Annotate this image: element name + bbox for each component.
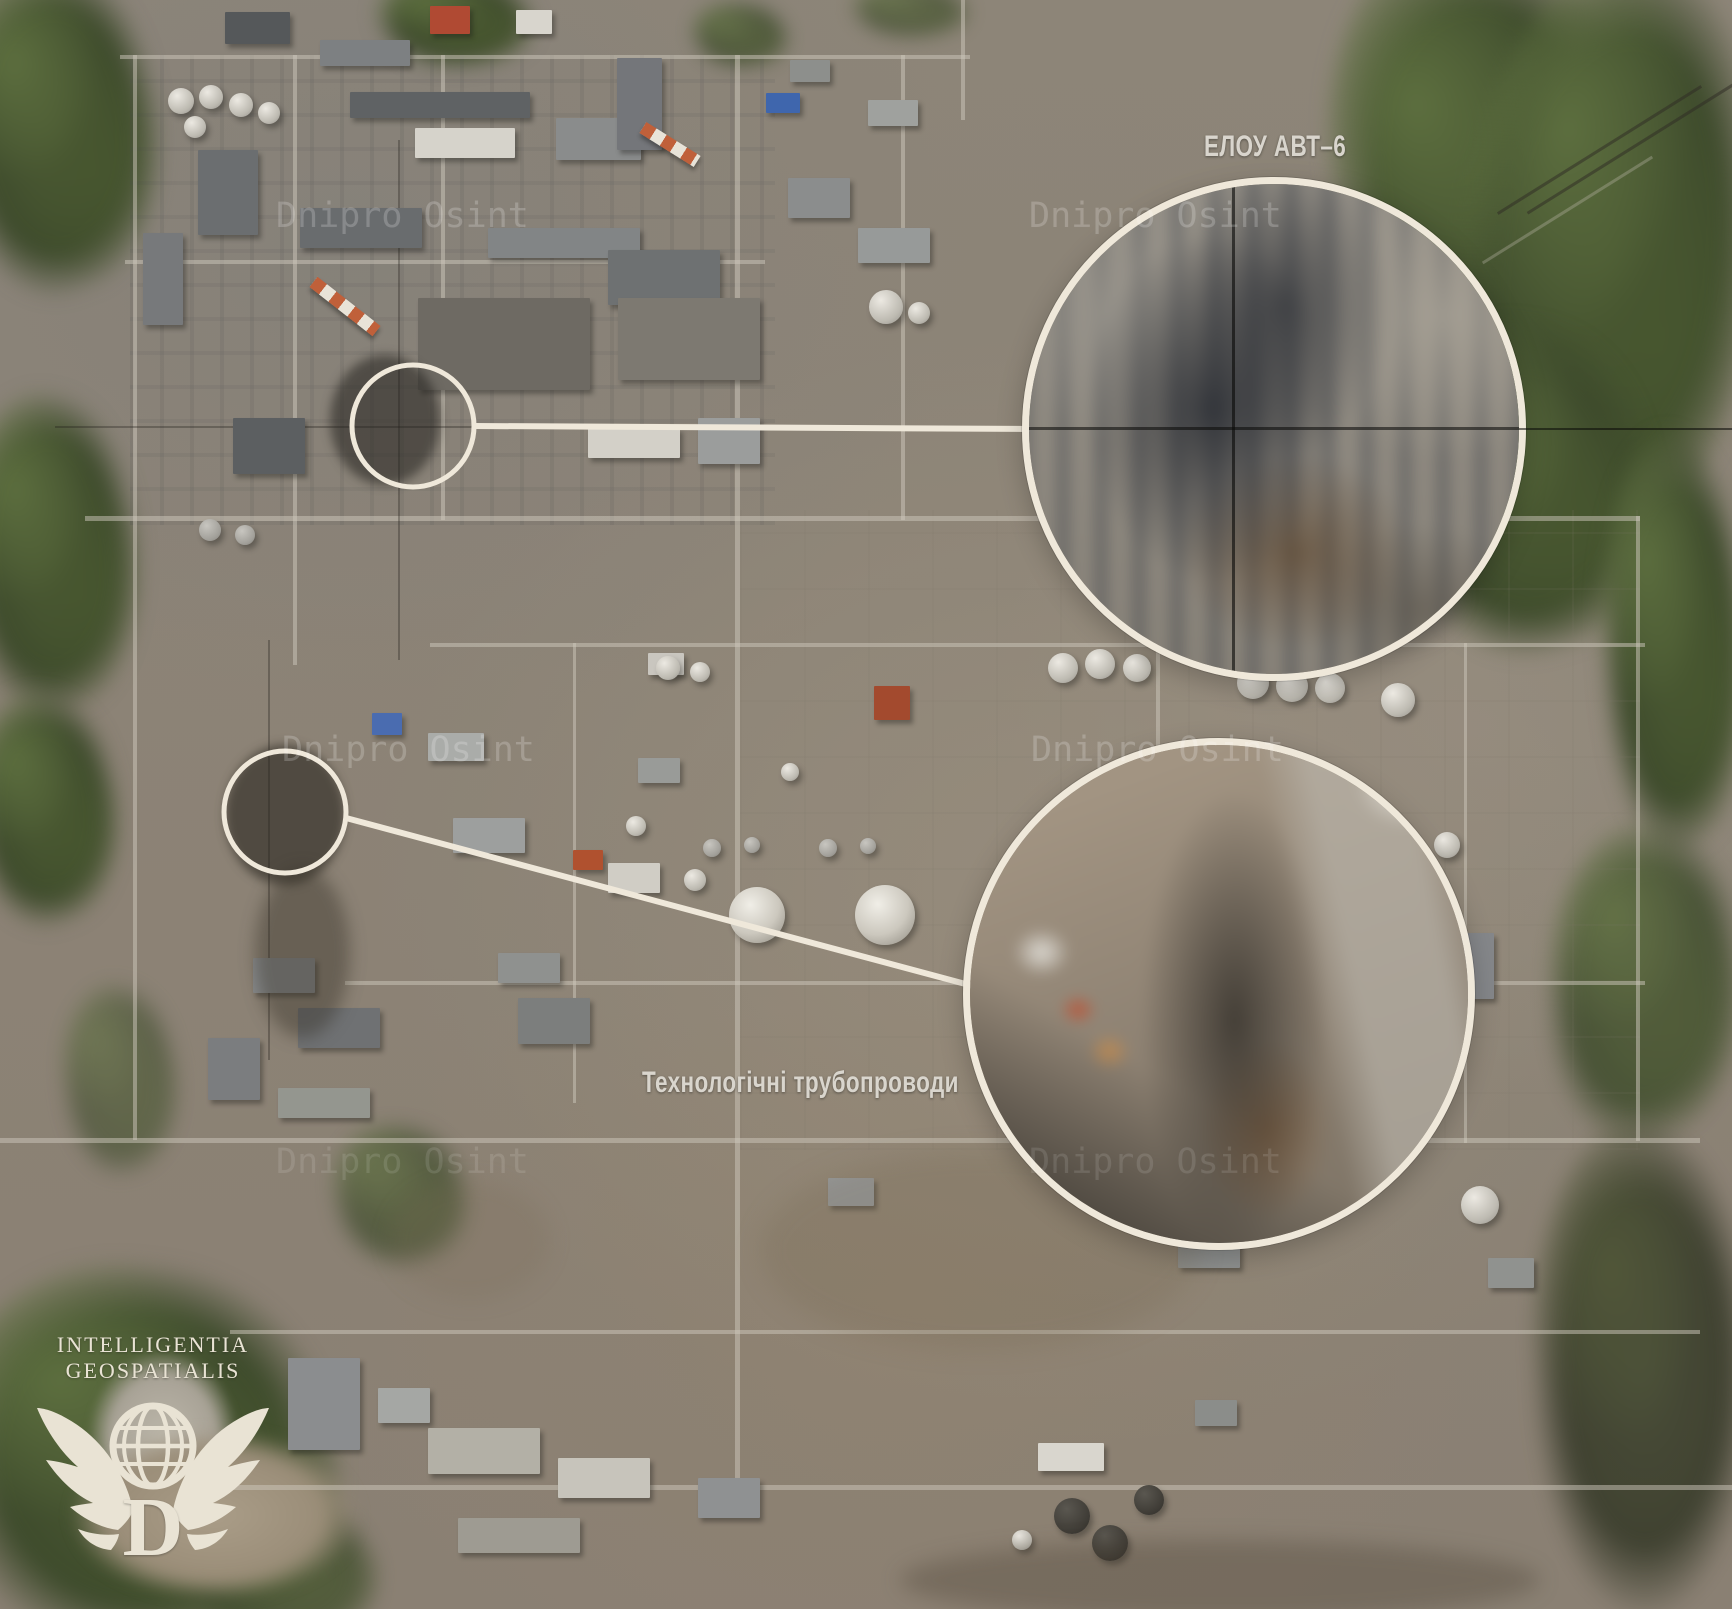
- globe-icon: [113, 1406, 193, 1486]
- watermark: Dnipro Osint: [1031, 730, 1284, 770]
- watermark: Dnipro Osint: [1029, 1142, 1282, 1182]
- connector-line-2: [346, 818, 973, 986]
- watermark: Dnipro Osint: [276, 196, 529, 236]
- label-pipelines: Технологічні трубопроводи: [642, 1066, 959, 1100]
- watermark: Dnipro Osint: [282, 730, 535, 770]
- satellite-image: Dnipro Osint Dnipro Osint Dnipro Osint D…: [0, 0, 1732, 1609]
- watermark: Dnipro Osint: [1029, 196, 1282, 236]
- connector-line-1: [474, 426, 1032, 429]
- label-elou-avt6: ЕЛОУ АВТ–6: [1204, 130, 1346, 164]
- inset1-grid-hline: [1029, 427, 1519, 430]
- grid-line-extension: [1519, 428, 1732, 430]
- marker-circle-elou-avt6: [352, 365, 474, 487]
- watermark: Dnipro Osint: [276, 1142, 529, 1182]
- logo-monogram: D: [33, 1486, 273, 1570]
- magnified-inset-elou-avt6: [1022, 177, 1526, 681]
